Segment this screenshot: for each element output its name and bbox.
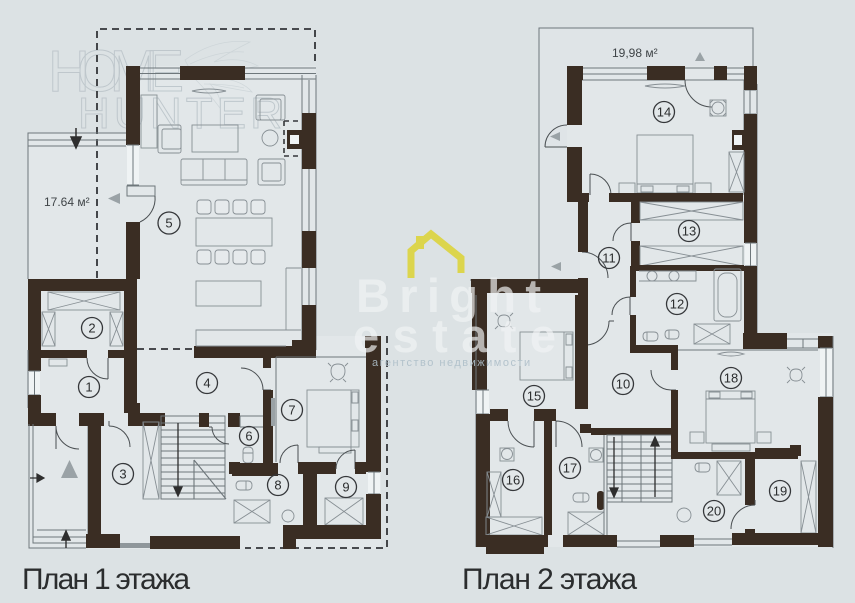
svg-text:агентство недвижимости: агентство недвижимости [372, 357, 532, 369]
svg-text:План 2 этажа: План 2 этажа [462, 563, 637, 596]
svg-text:12: 12 [670, 297, 684, 312]
svg-text:1: 1 [85, 380, 92, 395]
svg-text:17: 17 [563, 461, 577, 476]
svg-text:3: 3 [119, 467, 126, 482]
svg-text:7: 7 [288, 403, 295, 418]
svg-text:9: 9 [342, 480, 349, 495]
svg-text:8: 8 [274, 478, 281, 493]
svg-text:План 1 этажа: План 1 этажа [22, 563, 190, 596]
svg-text:19,98 м²: 19,98 м² [612, 46, 658, 60]
svg-text:2: 2 [88, 321, 95, 336]
svg-text:15: 15 [527, 389, 541, 404]
svg-text:18: 18 [724, 371, 738, 386]
svg-text:19: 19 [773, 484, 787, 499]
svg-text:5: 5 [165, 216, 172, 231]
svg-text:4: 4 [203, 376, 210, 391]
svg-text:17.64 м²: 17.64 м² [44, 195, 90, 209]
svg-text:13: 13 [682, 224, 696, 239]
svg-text:16: 16 [506, 473, 520, 488]
svg-text:20: 20 [707, 504, 721, 519]
svg-text:11: 11 [602, 251, 616, 266]
svg-text:10: 10 [616, 377, 630, 392]
svg-text:14: 14 [657, 105, 671, 120]
svg-text:HUNTER: HUNTER [78, 89, 282, 138]
svg-text:6: 6 [245, 429, 252, 444]
